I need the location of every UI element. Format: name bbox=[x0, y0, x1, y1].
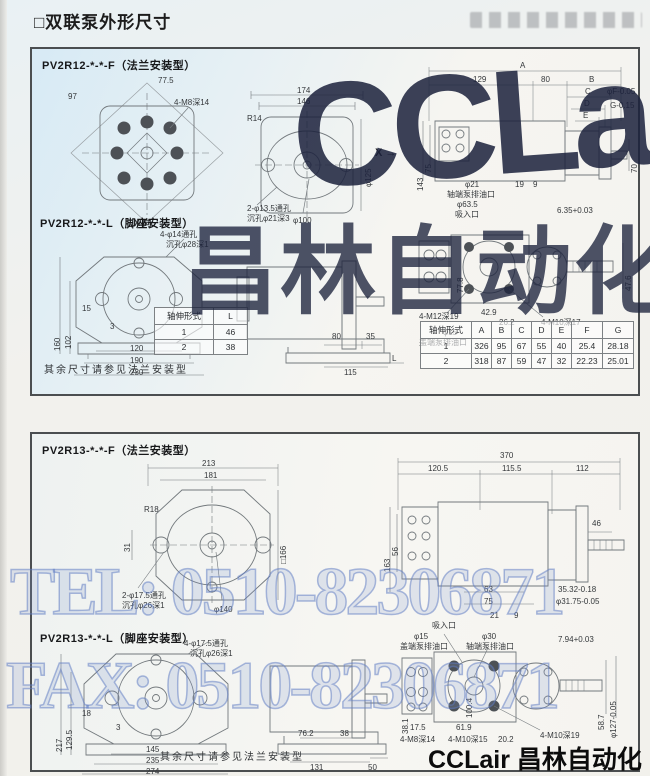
dim-label: A bbox=[520, 62, 525, 70]
bleed-through-text-artifact bbox=[470, 12, 642, 28]
arrow-icon: → bbox=[385, 147, 396, 159]
table-cell: 25.4 bbox=[572, 339, 603, 354]
table-cell: 55 bbox=[532, 339, 552, 354]
dim-label: 174 bbox=[297, 87, 310, 95]
port-label: 轴端泵排油口 bbox=[466, 643, 514, 651]
dim-label: 17.5 bbox=[410, 724, 426, 732]
dim-label: □166 bbox=[280, 546, 288, 564]
dim-label: B bbox=[589, 76, 594, 84]
shaft-extension-table: 轴伸形式 L 1 46 2 38 bbox=[154, 307, 248, 355]
dim-label: 100.4 bbox=[466, 698, 474, 718]
section-header-pv2r12-flange: PV2R12-*-*-F（法兰安装型） bbox=[42, 57, 196, 73]
dim-label: 145 bbox=[146, 746, 159, 754]
dim-label: 63 bbox=[484, 586, 493, 594]
dim-label: D bbox=[584, 100, 590, 108]
scan-edge-artifact bbox=[0, 0, 7, 776]
table-cell: 28.18 bbox=[603, 339, 634, 354]
table-header-cell: C bbox=[512, 322, 532, 339]
dim-label: 3 bbox=[116, 724, 120, 732]
dim-label: φ31.75-0.05 bbox=[556, 598, 599, 606]
dim-label: 9 bbox=[514, 612, 518, 620]
dim-label: 129 bbox=[473, 76, 486, 84]
dim-label: 2-φ17.5通孔 bbox=[122, 592, 166, 600]
dim-label: 50 bbox=[368, 764, 377, 772]
dim-label: 80 bbox=[541, 76, 550, 84]
dim-label: φ100 bbox=[293, 217, 312, 225]
dim-label: 75 bbox=[484, 598, 493, 606]
dim-label: 42.9 bbox=[481, 309, 497, 317]
table-cell: 1 bbox=[421, 339, 472, 354]
dim-label: 163 bbox=[384, 559, 392, 572]
table-header-cell: G bbox=[603, 322, 634, 339]
dim-label: R14 bbox=[247, 115, 262, 123]
port-label: 盖端泵排油口 bbox=[400, 643, 448, 651]
pv2r12-side-drawing: A 129 80 B C D E φF-0.05 G-0.15 143 75 7… bbox=[415, 61, 637, 223]
dim-label: 58.7 bbox=[598, 714, 606, 730]
dim-label: φ30 bbox=[482, 633, 496, 641]
dim-label: 2-φ13.5通孔 bbox=[247, 205, 291, 213]
table-cell: 47 bbox=[532, 354, 552, 369]
dim-label: C bbox=[585, 88, 591, 96]
table-cell: 59 bbox=[512, 354, 532, 369]
footer-brand: CCLair 昌林自动化 bbox=[428, 740, 642, 776]
dim-label: 56 bbox=[392, 547, 400, 556]
dim-label: 120 bbox=[130, 345, 143, 353]
dim-label: 46 bbox=[592, 520, 601, 528]
dim-label: 115 bbox=[344, 369, 357, 377]
dim-label: 102 bbox=[65, 336, 73, 349]
port-label: 吸入口 bbox=[432, 622, 456, 630]
dim-label: R18 bbox=[144, 506, 159, 514]
port-label: 吸入口 bbox=[455, 211, 479, 219]
table-cell: 2 bbox=[155, 340, 214, 355]
dim-label: 38 bbox=[340, 730, 349, 738]
dim-label: 沉孔φ28深1 bbox=[166, 241, 209, 249]
dimension-table: 轴伸形式 A B C D E F G 1 326 95 67 55 40 25.… bbox=[420, 321, 634, 369]
table-header-cell: A bbox=[472, 322, 492, 339]
dim-label: 80 bbox=[332, 333, 341, 341]
dim-label: 7.94+0.03 bbox=[558, 636, 594, 644]
page-title: □双联泵外形尺寸 bbox=[34, 8, 171, 33]
dim-label: L bbox=[392, 355, 396, 363]
table-cell: 326 bbox=[472, 339, 492, 354]
dim-label: 4-M12深19 bbox=[419, 313, 459, 321]
dim-label: 沉孔φ26深1 bbox=[190, 650, 233, 658]
dim-label: φF-0.05 bbox=[607, 88, 635, 96]
dim-label: φ127-0.05 bbox=[610, 701, 618, 738]
table-header-cell: 轴伸形式 bbox=[421, 322, 472, 339]
table-cell: 67 bbox=[512, 339, 532, 354]
dim-label: 160 bbox=[54, 338, 62, 351]
dim-label: 21 bbox=[490, 612, 499, 620]
view-direction-arrow: X → bbox=[375, 147, 396, 159]
panel-pv2r13: PV2R13-*-*-F（法兰安装型） 213 181 R18 31 bbox=[30, 432, 640, 772]
dim-label: 75 bbox=[425, 164, 433, 173]
dim-label: 35 bbox=[366, 333, 375, 341]
dim-label: 61.9 bbox=[456, 724, 472, 732]
table-header-cell: E bbox=[552, 322, 572, 339]
table-cell: 38 bbox=[214, 340, 248, 355]
dim-label: 70 bbox=[631, 164, 639, 173]
dim-label: 235 bbox=[146, 757, 159, 765]
dim-label: 120.5 bbox=[428, 465, 448, 473]
table-cell: 318 bbox=[472, 354, 492, 369]
dim-label: 4-φ17.5通孔 bbox=[184, 640, 228, 648]
reference-note: 其余尺寸请参见法兰安装型 bbox=[44, 361, 188, 376]
dim-label: E bbox=[583, 112, 588, 120]
dim-label: 4-M10深19 bbox=[540, 732, 580, 740]
dim-label: φ15 bbox=[414, 633, 428, 641]
dim-label: G-0.15 bbox=[610, 102, 634, 110]
dim-label: 131 bbox=[310, 764, 323, 772]
table-header-cell: 轴伸形式 bbox=[155, 308, 214, 325]
dim-label: φ140 bbox=[214, 606, 233, 614]
dim-label: 3 bbox=[110, 323, 114, 331]
section-header-pv2r12-foot: PV2R12-*-*-L（脚座安装型） bbox=[40, 215, 194, 231]
dim-label: 97 bbox=[68, 93, 77, 101]
table-cell: 25.01 bbox=[603, 354, 634, 369]
dim-label: 129.5 bbox=[66, 730, 74, 750]
table-cell: 46 bbox=[214, 325, 248, 340]
pv2r13-side-drawing: 370 120.5 115.5 112 46 163 56 63 75 35.3… bbox=[384, 452, 632, 622]
dim-label: 47.6 bbox=[625, 275, 633, 291]
reference-note: 其余尺寸请参见法兰安装型 bbox=[160, 748, 304, 763]
section-header-pv2r13-flange: PV2R13-*-*-F（法兰安装型） bbox=[42, 442, 196, 458]
dim-label: 146 bbox=[297, 98, 310, 106]
dim-label: 181 bbox=[204, 472, 217, 480]
table-cell: 1 bbox=[155, 325, 214, 340]
dim-label: 4-M8深14 bbox=[174, 99, 209, 107]
pv2r12-foot-side-drawing: 80 35 115 L bbox=[232, 245, 412, 377]
dim-label: 115.5 bbox=[502, 465, 521, 473]
panel-pv2r12: PV2R12-*-*-F（法兰安装型） 77.5 97 4-M8深14 X bbox=[30, 47, 640, 396]
dim-label: 217 bbox=[56, 739, 64, 752]
table-cell: 2 bbox=[421, 354, 472, 369]
dim-label: 19 bbox=[515, 181, 524, 189]
dim-label: 沉孔φ26深1 bbox=[122, 602, 165, 610]
pv2r13-port-end-drawing: 吸入口 φ15 盖端泵排油口 φ30 轴端泵排油口 7.94+0.03 38.1… bbox=[400, 622, 630, 750]
port-label: 轴端泵排油口 bbox=[447, 191, 495, 199]
dim-label: 77.5 bbox=[158, 77, 174, 85]
dim-label: 4-φ14通孔 bbox=[160, 231, 197, 239]
dim-label: 112 bbox=[576, 465, 589, 473]
dim-label: φ125 bbox=[365, 168, 373, 187]
dim-label: 143 bbox=[417, 178, 425, 191]
dim-label: 76.2 bbox=[298, 730, 314, 738]
dim-label: 6.35+0.03 bbox=[557, 207, 593, 215]
pv2r12-flange-front-drawing: 174 146 R14 φ125 2-φ13.5通孔 沉孔φ21深3 φ100 bbox=[247, 87, 367, 229]
dim-label: φ63.5 bbox=[457, 201, 478, 209]
table-header-cell: F bbox=[572, 322, 603, 339]
dim-label: 35.32-0.18 bbox=[558, 586, 596, 594]
catalog-page: □双联泵外形尺寸 PV2R12-*-*-F（法兰安装型） 77.5 9 bbox=[0, 0, 650, 776]
dim-label: 370 bbox=[500, 452, 513, 460]
x-label: X bbox=[375, 147, 382, 159]
table-cell: 95 bbox=[492, 339, 512, 354]
table-cell: 32 bbox=[552, 354, 572, 369]
dim-label: 沉孔φ21深3 bbox=[247, 215, 290, 223]
table-header-cell: B bbox=[492, 322, 512, 339]
dim-label: 274 bbox=[146, 768, 159, 776]
pv2r12-bolt-face-drawing: 77.5 97 4-M8深14 X 向 bbox=[62, 77, 232, 229]
dim-label: 77.8 bbox=[457, 277, 465, 293]
table-cell: 40 bbox=[552, 339, 572, 354]
dim-label: φ21 bbox=[465, 181, 479, 189]
dim-label: 31 bbox=[124, 543, 132, 552]
table-cell: 87 bbox=[492, 354, 512, 369]
pv2r13-flange-front-drawing: 213 181 R18 31 □166 2-φ17.5通孔 沉孔φ26深1 φ1… bbox=[120, 460, 288, 624]
dim-label: 9 bbox=[533, 181, 537, 189]
dim-label: 18 bbox=[82, 710, 91, 718]
table-header-cell: L bbox=[214, 308, 248, 325]
table-header-cell: D bbox=[532, 322, 552, 339]
table-cell: 22.23 bbox=[572, 354, 603, 369]
dim-label: 213 bbox=[202, 460, 215, 468]
dim-label: 38.1 bbox=[402, 718, 410, 734]
dim-label: 15 bbox=[82, 305, 91, 313]
